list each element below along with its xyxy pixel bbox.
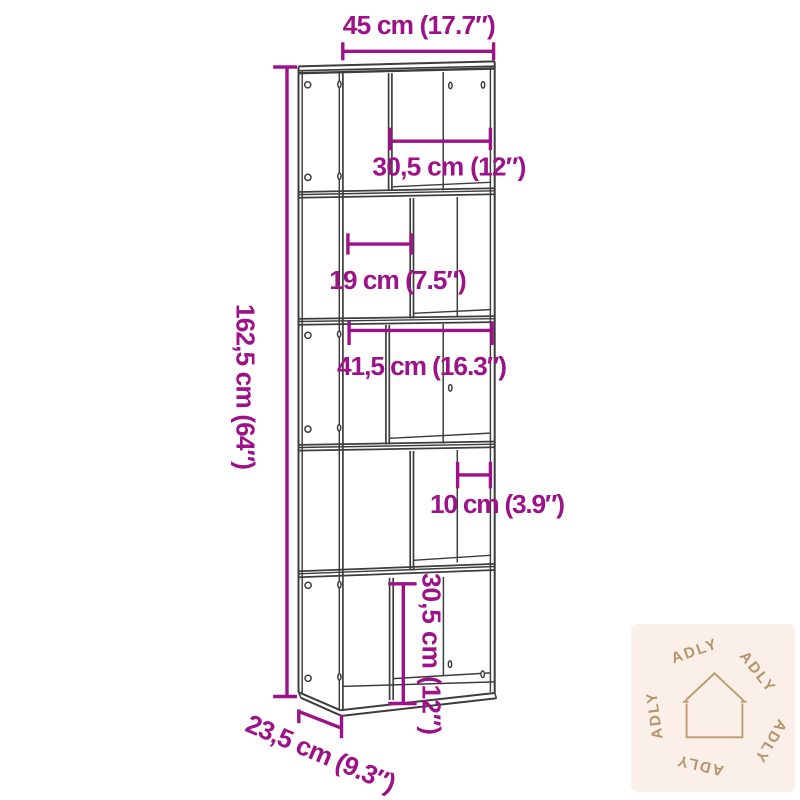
svg-text:30,5 cm (12″): 30,5 cm (12″) [372, 152, 526, 182]
svg-text:10 cm (3.9″): 10 cm (3.9″) [430, 489, 565, 519]
svg-text:162,5 cm (64″): 162,5 cm (64″) [231, 304, 261, 470]
svg-text:41,5 cm (16.3″): 41,5 cm (16.3″) [337, 351, 507, 381]
svg-text:19 cm (7.5″): 19 cm (7.5″) [329, 265, 467, 295]
svg-text:45 cm (17.7″): 45 cm (17.7″) [343, 10, 496, 40]
svg-text:30,5 cm (12″): 30,5 cm (12″) [417, 573, 447, 735]
